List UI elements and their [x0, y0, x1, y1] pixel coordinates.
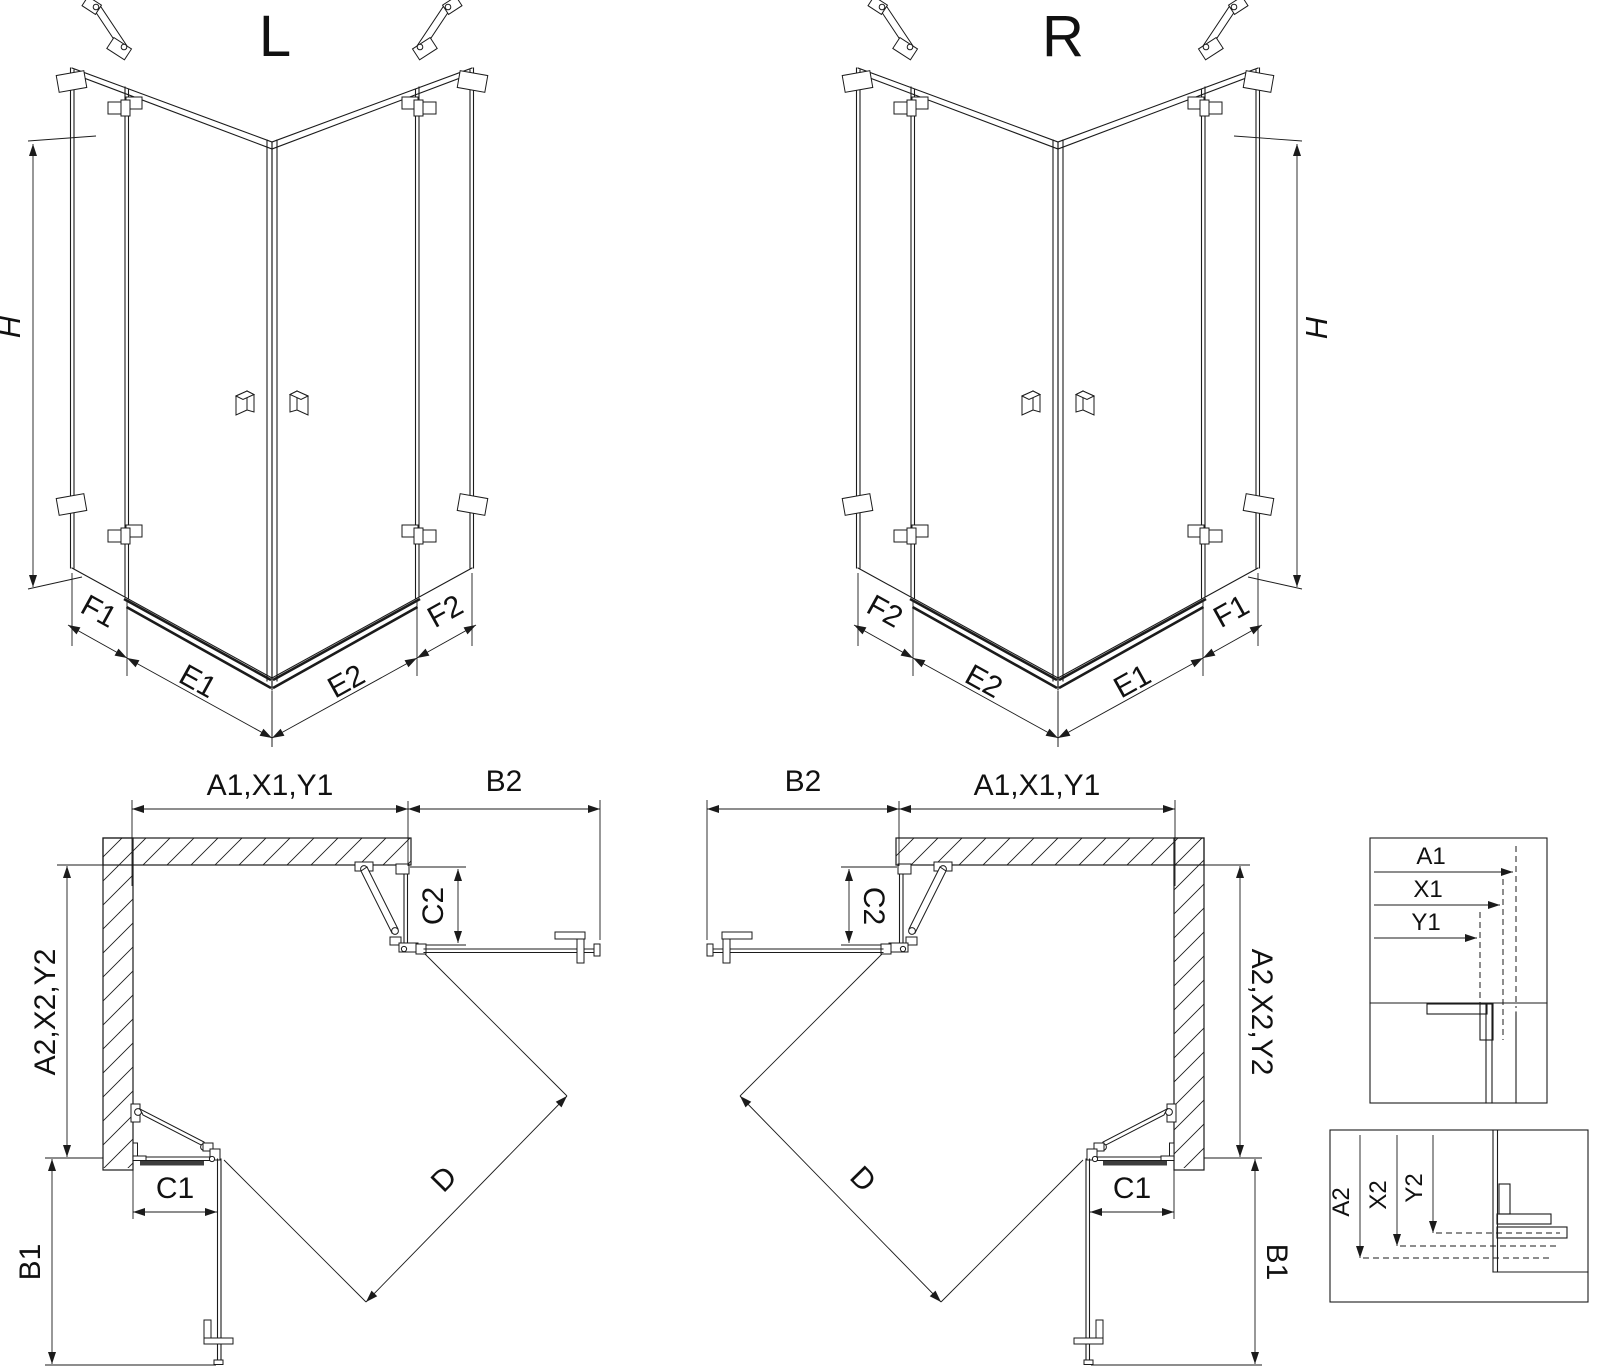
base-dim-e1-right: E1 — [1108, 658, 1156, 705]
plan-view-left — [45, 800, 600, 1365]
plan-right-return-bottom-dim: B1 — [1260, 1244, 1293, 1281]
plan-right-width-dim: A1,X1,Y1 — [974, 769, 1101, 802]
detail-depth-a2: A2 — [1328, 1187, 1355, 1216]
labels: L H F1 E1 E2 F2 R H F2 E2 E1 F1 A1,X1,Y1… — [0, 4, 1446, 1280]
technical-drawing-page: L H F1 E1 E2 F2 R H F2 E2 E1 F1 A1,X1,Y1… — [0, 0, 1600, 1371]
base-dim-e2-left: E2 — [322, 658, 370, 705]
detail-depth-y2: Y2 — [1401, 1173, 1428, 1202]
detail-inset-depth — [1330, 1130, 1588, 1302]
detail-depth-x2: X2 — [1365, 1180, 1392, 1209]
plan-left-depth-dim: A2,X2,Y2 — [29, 949, 62, 1076]
height-dim-label-left: H — [0, 315, 27, 338]
iso-view-right — [842, 0, 1302, 747]
base-dim-f2-right: F2 — [861, 589, 908, 635]
detail-width-x1: X1 — [1413, 876, 1442, 903]
plan-left-diagonal-dim: D — [425, 1160, 464, 1199]
detail-inset-width — [1370, 838, 1547, 1103]
plan-left-fixed-bottom-dim: C1 — [156, 1172, 194, 1205]
technical-drawing-canvas: L H F1 E1 E2 F2 R H F2 E2 E1 F1 A1,X1,Y1… — [0, 0, 1600, 1371]
detail-width-a1: A1 — [1416, 843, 1445, 870]
plan-right-fixed-top-dim: C2 — [857, 887, 890, 925]
variant-label-left: L — [259, 4, 291, 69]
base-dim-f1-right: F1 — [1208, 589, 1255, 635]
wall-hatch-top-left-plan — [103, 838, 411, 865]
plan-left-return-bottom-dim: B1 — [14, 1244, 47, 1281]
plan-left-return-top-dim: B2 — [486, 765, 523, 798]
plan-left-width-dim: A1,X1,Y1 — [207, 769, 334, 802]
wall-hatch-side-right-plan — [1174, 865, 1204, 1168]
wall-hatch-side-left-plan — [103, 865, 133, 1168]
plan-right-diagonal-dim: D — [843, 1160, 882, 1199]
plan-right-depth-dim: A2,X2,Y2 — [1245, 949, 1278, 1076]
base-dim-f2-left: F2 — [422, 589, 469, 635]
base-dim-e1-left: E1 — [174, 658, 222, 705]
base-dim-e2-right: E2 — [960, 658, 1008, 705]
plan-right-fixed-bottom-dim: C1 — [1113, 1172, 1151, 1205]
variant-label-right: R — [1042, 4, 1084, 69]
height-dim-label-right: H — [1299, 316, 1334, 339]
wall-hatch-top-right-plan — [896, 838, 1204, 865]
plan-right-return-top-dim: B2 — [785, 765, 822, 798]
plan-left-fixed-top-dim: C2 — [417, 887, 450, 925]
base-dim-f1-left: F1 — [75, 589, 122, 635]
plan-view-right — [707, 800, 1262, 1365]
iso-view-left — [28, 0, 488, 747]
detail-width-y1: Y1 — [1411, 909, 1440, 936]
